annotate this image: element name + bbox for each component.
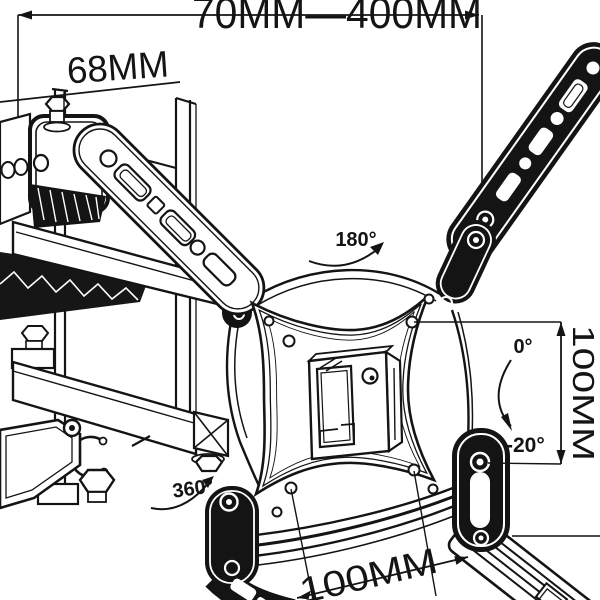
extension-range-label: 70MM—400MM [192,0,482,38]
tilt-up-label: 0° [513,336,532,358]
wall-plate-depth-label: 68MM [66,43,171,91]
annotation-swivel: 180° [309,229,384,266]
annotation-rotation: 360° [151,475,215,509]
vesa-vertical-label: 100MM [566,325,600,461]
tilt-down-label: -20° [506,434,545,457]
vesa-plate [252,295,438,517]
technical-drawing-wall-mount: 70MM—400MM 68MM 180° 100MM 0° -20 [0,0,600,600]
dimension-wall-plate-depth: 68MM [0,43,180,118]
center-block [309,346,402,459]
vesa-arm-top-right [429,32,600,310]
vesa-horizontal-label: 100MM [296,540,442,600]
drawing-canvas: 70MM—400MM 68MM 180° 100MM 0° -20 [0,0,600,600]
rotation-angle-label: 360° [171,475,215,503]
swivel-angle-label: 180° [335,229,376,251]
annotation-tilt: 0° -20° [499,336,545,457]
